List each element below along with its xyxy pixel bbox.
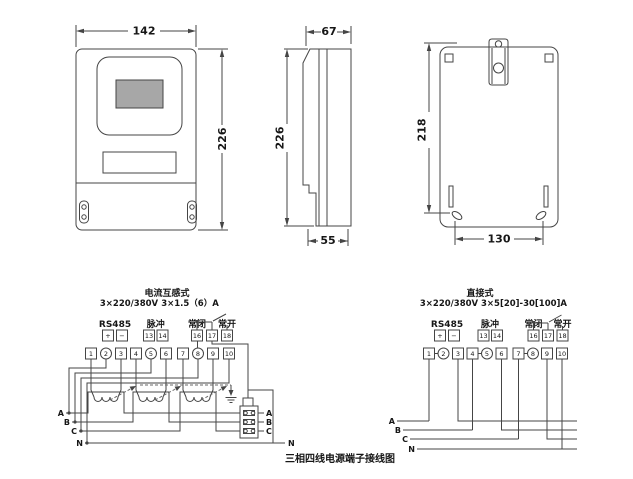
direct-wiring-diagram: 直接式 3×220/380V 3×5[20]-30[100]A RS485 脉冲… (389, 287, 577, 454)
back-slot-right (544, 186, 548, 207)
direct-aux-13: 13 (479, 332, 487, 340)
direct-wiring (397, 354, 577, 450)
side-base-dimension: 55 (308, 229, 348, 247)
front-height-dimension: 226 (198, 49, 229, 230)
direct-terminal-4: 4 (470, 350, 474, 358)
ct-coil-a (94, 397, 118, 402)
direct-terminal-10: 10 (558, 350, 566, 358)
direct-terminal-3: 3 (456, 350, 460, 358)
front-seal-left (80, 201, 89, 223)
ct-pulse-label: 脉冲 (146, 318, 165, 330)
ct-aux-18: 18 (223, 332, 231, 340)
back-corner-hole-left (445, 54, 453, 62)
figure-canvas: 142 226 67 226 55 (0, 0, 633, 479)
back-height-dimension: 218 (416, 43, 458, 213)
ct-fuse-out-a-label: A (266, 409, 273, 418)
ct-terminal-2: 2 (104, 350, 108, 358)
back-mount-hole-right (535, 210, 547, 221)
ct-terminal-6: 6 (164, 350, 168, 358)
ct-terminal-8: 8 (196, 350, 200, 358)
ct-phase-b-line (72, 392, 240, 422)
direct-aux-minus: − (451, 332, 456, 340)
side-base-dim-label: 55 (320, 234, 335, 247)
earth-symbol (226, 398, 237, 403)
direct-aux-18: 18 (558, 332, 566, 340)
direct-current-spec: 3×5[20]-30[100]A (481, 299, 567, 309)
direct-rs485-label: RS485 (431, 320, 463, 330)
direct-phase-a-label: A (389, 417, 396, 426)
ct-aux-13: 13 (145, 332, 153, 340)
direct-title: 直接式 (466, 287, 493, 299)
side-height-dimension: 226 (274, 49, 315, 226)
side-depth-dim-label: 67 (321, 25, 336, 38)
front-seal-right (188, 201, 197, 223)
direct-aux-terminals: + − 13 14 16 17 18 (435, 330, 569, 341)
direct-aux-17: 17 (544, 332, 552, 340)
direct-terminal-8: 8 (531, 350, 535, 358)
direct-neutral-label: N (408, 445, 415, 454)
side-height-dim-label: 226 (274, 126, 287, 149)
ct-aux-17: 17 (208, 332, 216, 340)
ct-aux-plus: + (105, 332, 110, 340)
ct-fuse-out-b-label: B (266, 418, 272, 427)
back-view: 218 130 (416, 39, 559, 246)
ct-aux-14: 14 (158, 332, 166, 340)
direct-aux-plus: + (437, 332, 442, 340)
back-hole-span-dimension: 130 (455, 221, 543, 246)
ct-terminal-7: 7 (181, 350, 185, 358)
ct-aux-terminals: + − 13 14 16 17 18 (103, 330, 233, 341)
ct-terminal-3: 3 (119, 350, 123, 358)
direct-phase-c-label: C (402, 435, 408, 444)
meter-manual-figure: 142 226 67 226 55 (0, 0, 633, 479)
direct-aux-14: 14 (493, 332, 501, 340)
front-width-dimension: 142 (76, 25, 196, 48)
ct-phase-c-line (79, 392, 240, 431)
ct-aux-minus: − (119, 332, 124, 340)
direct-main-terminals: 1 2 3 4 5 6 7 8 9 10 (424, 348, 568, 359)
direct-terminal-1: 1 (427, 350, 431, 358)
direct-voltage-spec: 3×220/380V (420, 299, 479, 309)
ct-terminal-1: 1 (89, 350, 93, 358)
ct-neutral-out-label: N (288, 439, 295, 448)
front-view: 142 226 (76, 25, 229, 231)
ct-main-terminals: 1 2 3 4 5 6 7 8 9 10 (86, 348, 235, 359)
direct-aux-16: 16 (529, 332, 537, 340)
ct-wiring (66, 341, 285, 445)
back-hanger-tab (489, 39, 508, 47)
ct-phase-b-in-label: B (64, 418, 70, 427)
back-corner-hole-right (545, 54, 553, 62)
back-hole-span-dim-label: 130 (488, 233, 511, 246)
direct-terminal-7: 7 (516, 350, 520, 358)
ct-terminal-5: 5 (149, 350, 153, 358)
side-view: 67 226 55 (274, 25, 352, 247)
ct-title: 电流互感式 (144, 287, 189, 299)
ct-fuse-box (240, 398, 264, 438)
direct-terminal-6: 6 (499, 350, 503, 358)
front-height-dim-label: 226 (216, 127, 229, 150)
ct-wiring-diagram: 电流互感式 3×220/380V 3×1.5（6）A RS485 脉冲 常闭 常… (58, 287, 295, 448)
direct-terminal-9: 9 (545, 350, 549, 358)
ct-phase-a-in-label: A (58, 409, 65, 418)
back-slot-left (449, 186, 453, 207)
figure-caption: 三相四线电源端子接线图 (285, 452, 395, 465)
ct-voltage-spec: 3×220/380V (100, 299, 159, 309)
ct-coil-c (186, 397, 210, 402)
direct-pulse-label: 脉冲 (480, 318, 499, 330)
direct-phase-b-label: B (395, 426, 401, 435)
front-lcd-screen (116, 80, 163, 108)
back-mount-hole-left (451, 210, 463, 221)
ct-phase-a-line (66, 392, 240, 413)
ct-terminal-4: 4 (134, 350, 138, 358)
back-height-dim-label: 218 (416, 119, 429, 142)
front-nameplate (103, 152, 176, 173)
ct-terminal-10: 10 (225, 350, 233, 358)
side-depth-dimension: 67 (306, 25, 351, 46)
direct-terminal-2: 2 (441, 350, 445, 358)
ct-current-spec: 3×1.5（6）A (161, 298, 219, 309)
ct-aux-16: 16 (193, 332, 201, 340)
ct-fuse-out-c-label: C (266, 427, 272, 436)
direct-terminal-5: 5 (485, 350, 489, 358)
front-width-dim-label: 142 (133, 25, 156, 38)
ct-terminal-9: 9 (211, 350, 215, 358)
front-body-outline (76, 49, 196, 230)
ct-rs485-label: RS485 (99, 320, 131, 330)
ct-neutral-in-label: N (76, 439, 83, 448)
ct-phase-c-in-label: C (71, 427, 77, 436)
ct-coil-b (139, 397, 163, 402)
